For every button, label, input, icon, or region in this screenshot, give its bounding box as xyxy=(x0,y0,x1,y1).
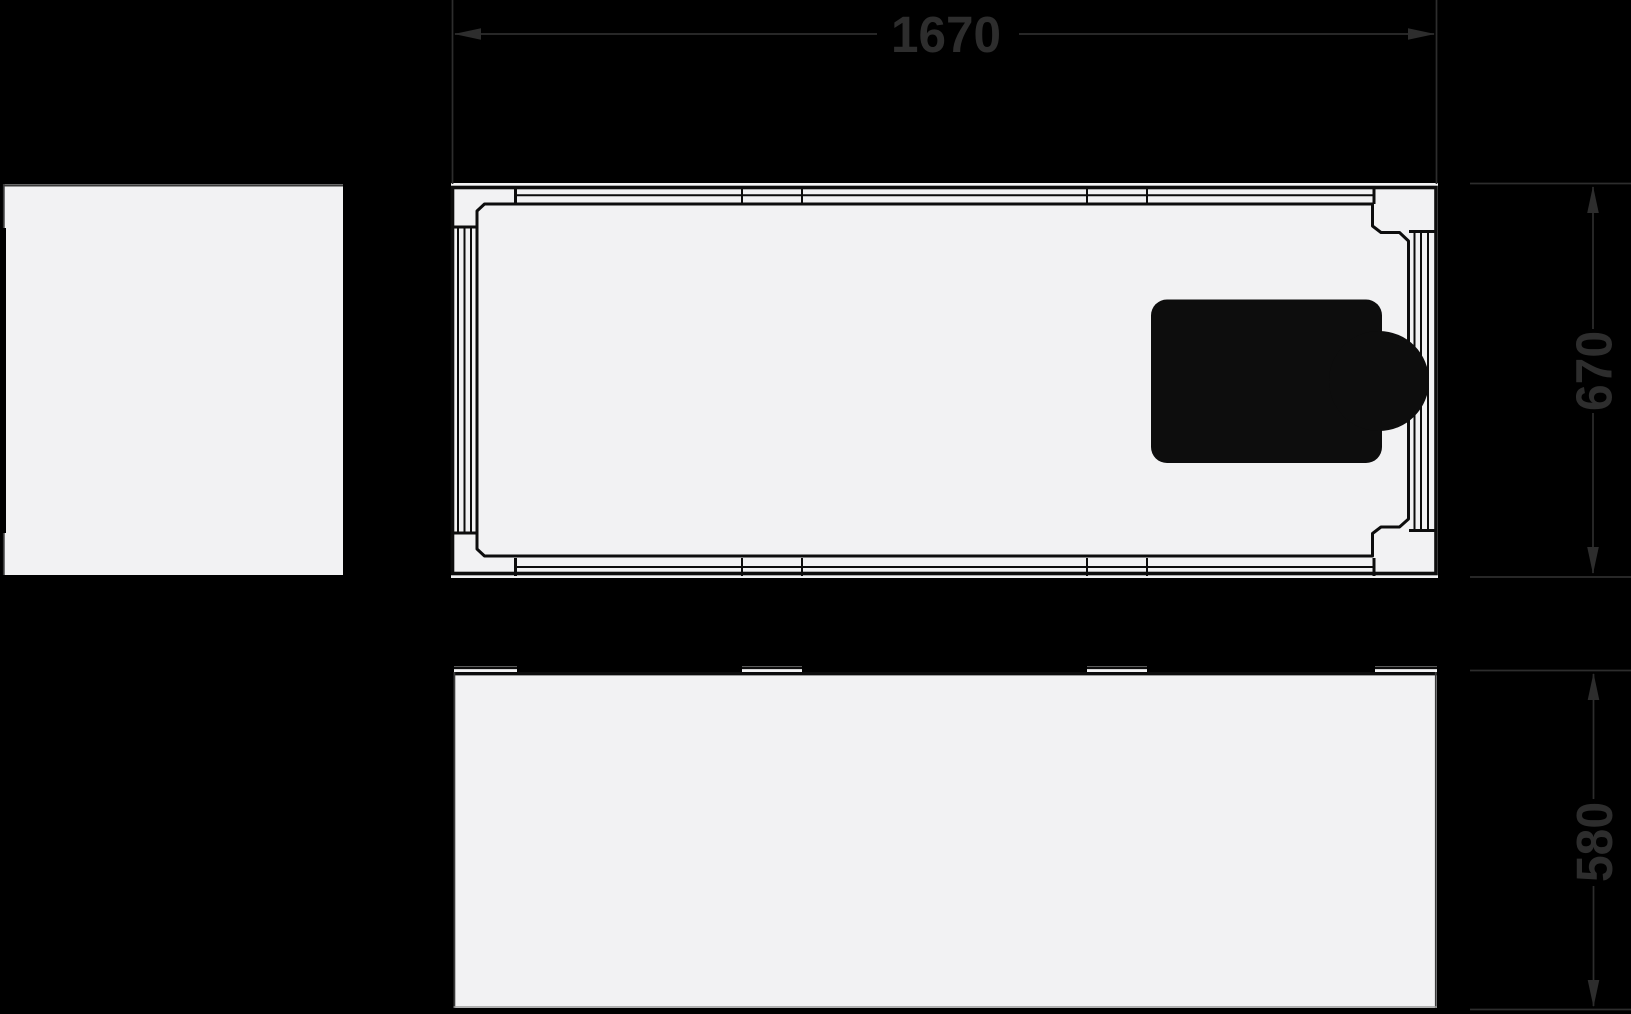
drawing-canvas: 1670 670 580 xyxy=(0,0,1631,1014)
end-view-body xyxy=(3,184,343,575)
dim-depth-label: 670 xyxy=(1566,331,1623,411)
side-view-body xyxy=(454,672,1438,1008)
end-view-left-flange xyxy=(0,228,6,533)
end-view xyxy=(0,184,343,575)
dim-width-label: 1670 xyxy=(891,6,1001,63)
technical-drawing: 1670 670 580 xyxy=(0,0,1631,1014)
dim-height-label: 580 xyxy=(1566,802,1623,882)
headrest-bump xyxy=(1329,331,1429,431)
plan-view xyxy=(451,183,1438,578)
side-view xyxy=(454,667,1438,1009)
